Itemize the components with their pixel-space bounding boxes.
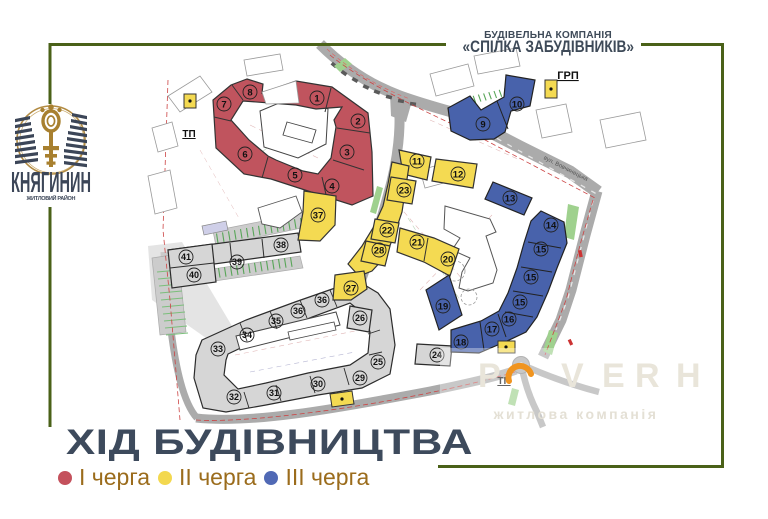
svg-text:16: 16 xyxy=(504,314,515,325)
svg-text:15: 15 xyxy=(536,244,547,255)
svg-text:36: 36 xyxy=(293,306,303,316)
svg-text:33: 33 xyxy=(213,344,223,354)
svg-text:19: 19 xyxy=(438,301,449,312)
svg-text:14: 14 xyxy=(546,220,557,231)
svg-text:ЖИТЛОВИЙ РАЙОН: ЖИТЛОВИЙ РАЙОН xyxy=(26,194,76,202)
svg-text:8: 8 xyxy=(247,87,252,98)
svg-text:29: 29 xyxy=(355,373,365,383)
svg-text:39: 39 xyxy=(232,257,242,267)
svg-text:28: 28 xyxy=(374,245,385,256)
svg-text:КНЯГИНИН: КНЯГИНИН xyxy=(11,165,91,198)
svg-text:3: 3 xyxy=(344,147,349,158)
svg-text:9: 9 xyxy=(480,119,485,130)
svg-text:ТП: ТП xyxy=(182,129,195,140)
svg-text:житлова компанія: житлова компанія xyxy=(493,406,659,422)
svg-text:15: 15 xyxy=(515,297,526,308)
svg-text:30: 30 xyxy=(313,379,323,389)
svg-text:18: 18 xyxy=(456,337,467,348)
svg-text:4: 4 xyxy=(329,181,335,192)
svg-text:13: 13 xyxy=(505,193,516,204)
svg-text:вул. Вовчинецька: вул. Вовчинецька xyxy=(542,155,589,183)
svg-text:5: 5 xyxy=(292,170,298,181)
svg-text:17: 17 xyxy=(487,324,498,335)
svg-text:22: 22 xyxy=(382,225,393,236)
svg-text:36: 36 xyxy=(317,295,327,305)
svg-text:11: 11 xyxy=(412,156,423,167)
svg-text:7: 7 xyxy=(221,99,226,110)
svg-text:21: 21 xyxy=(412,237,423,248)
svg-text:40: 40 xyxy=(189,270,199,280)
svg-text:25: 25 xyxy=(373,357,383,367)
svg-text:26: 26 xyxy=(355,313,365,323)
svg-text:20: 20 xyxy=(443,254,454,265)
svg-text:6: 6 xyxy=(242,149,247,160)
svg-text:37: 37 xyxy=(313,210,324,221)
svg-text:32: 32 xyxy=(229,392,239,402)
svg-text:23: 23 xyxy=(399,185,410,196)
svg-text:ГРП: ГРП xyxy=(557,70,579,82)
svg-text:34: 34 xyxy=(242,330,252,340)
svg-text:27: 27 xyxy=(346,283,357,294)
svg-text:10: 10 xyxy=(512,99,523,110)
svg-text:15: 15 xyxy=(526,272,537,283)
svg-text:12: 12 xyxy=(453,169,464,180)
svg-text:35: 35 xyxy=(271,316,281,326)
svg-text:2: 2 xyxy=(355,116,360,127)
svg-text:38: 38 xyxy=(276,240,286,250)
svg-text:31: 31 xyxy=(269,388,279,398)
svg-text:1: 1 xyxy=(314,93,320,104)
svg-text:41: 41 xyxy=(181,252,191,262)
